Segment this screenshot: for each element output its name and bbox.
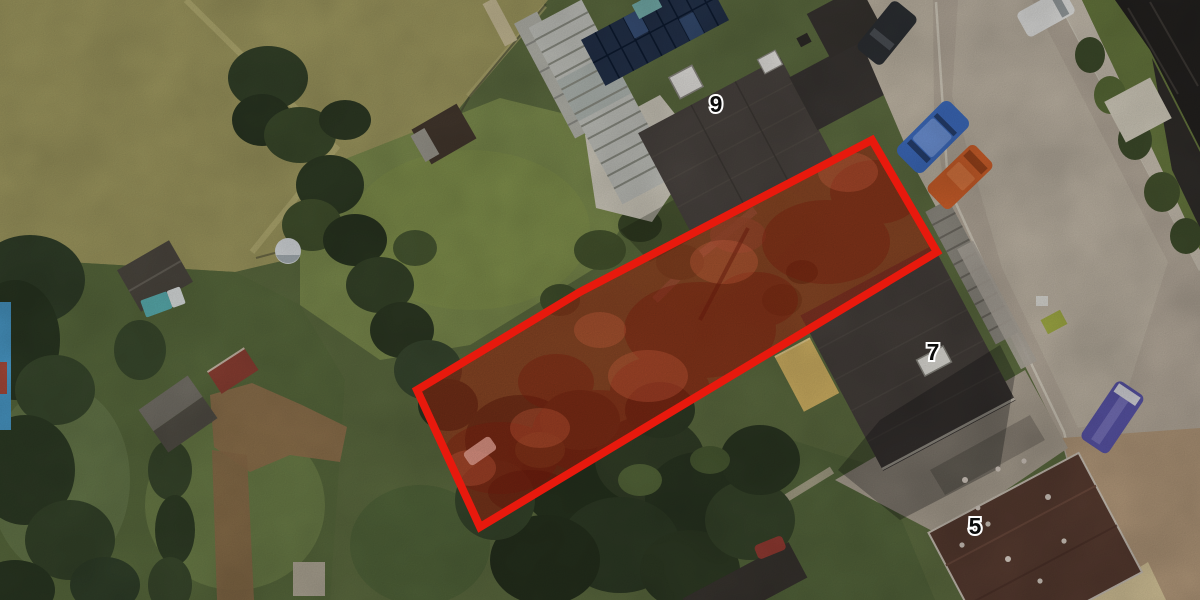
aerial-map: 9 7 5 (0, 0, 1200, 600)
aerial-map-canvas: 9 7 5 (0, 0, 1200, 600)
house-number-label-5: 5 (969, 513, 982, 539)
house-number-label-7: 7 (927, 339, 940, 365)
house-number-label-9: 9 (710, 91, 723, 117)
